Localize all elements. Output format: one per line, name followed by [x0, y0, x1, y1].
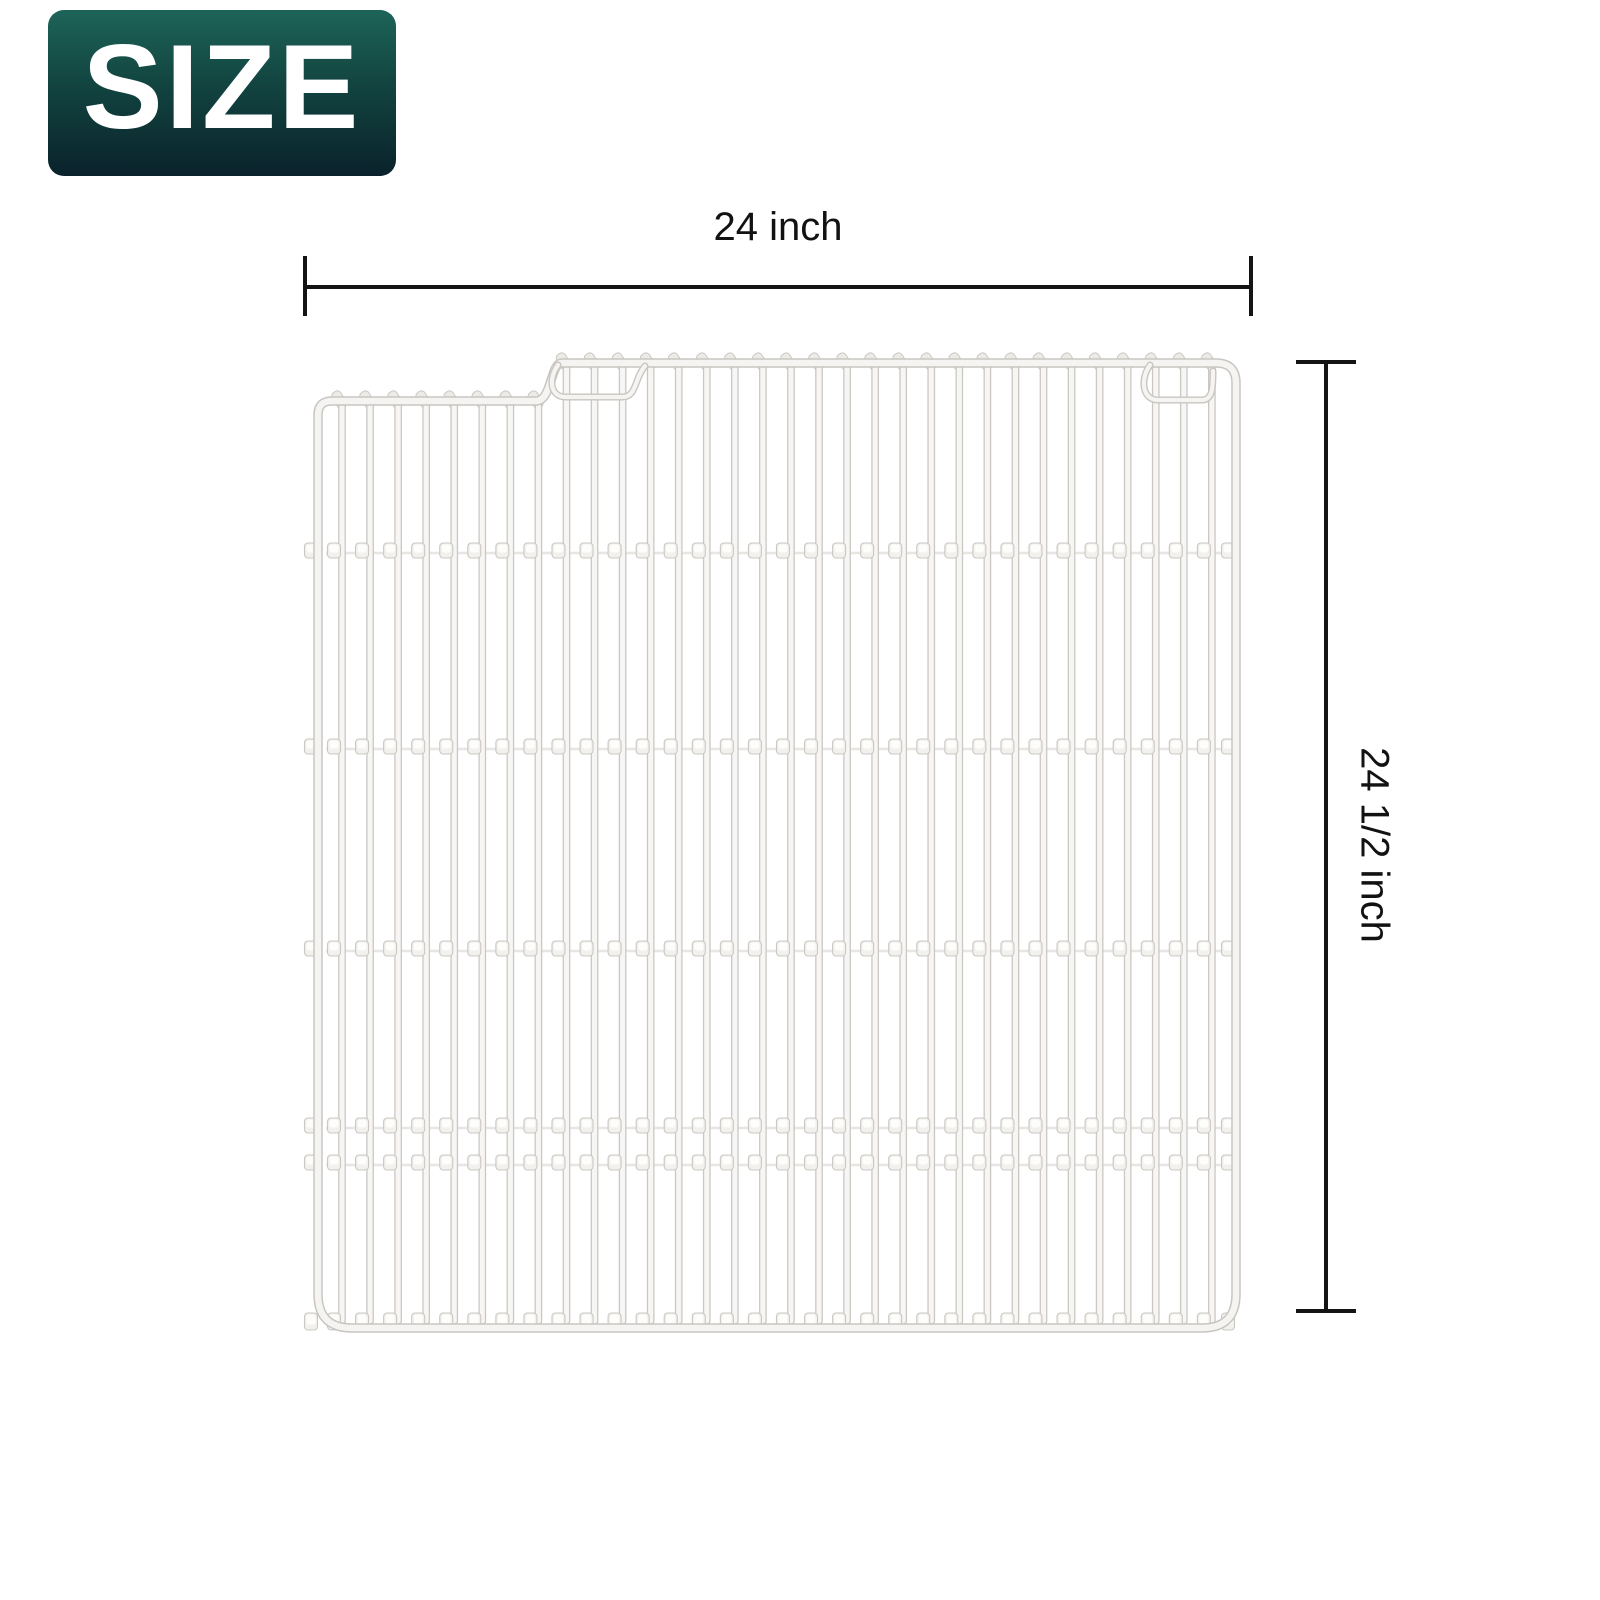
width-dimension-tick-left — [303, 256, 307, 316]
height-dimension-label: 24 1/2 inch — [1352, 747, 1397, 943]
height-dimension-tick-top — [1296, 360, 1356, 364]
height-dimension-tick-bottom — [1296, 1309, 1356, 1313]
width-dimension-line — [305, 285, 1251, 289]
height-dimension-line — [1324, 362, 1328, 1311]
width-dimension-label: 24 inch — [305, 205, 1251, 250]
size-diagram: SIZE 24 inch 24 1/2 inch — [0, 0, 1600, 1600]
width-dimension-tick-right — [1249, 256, 1253, 316]
